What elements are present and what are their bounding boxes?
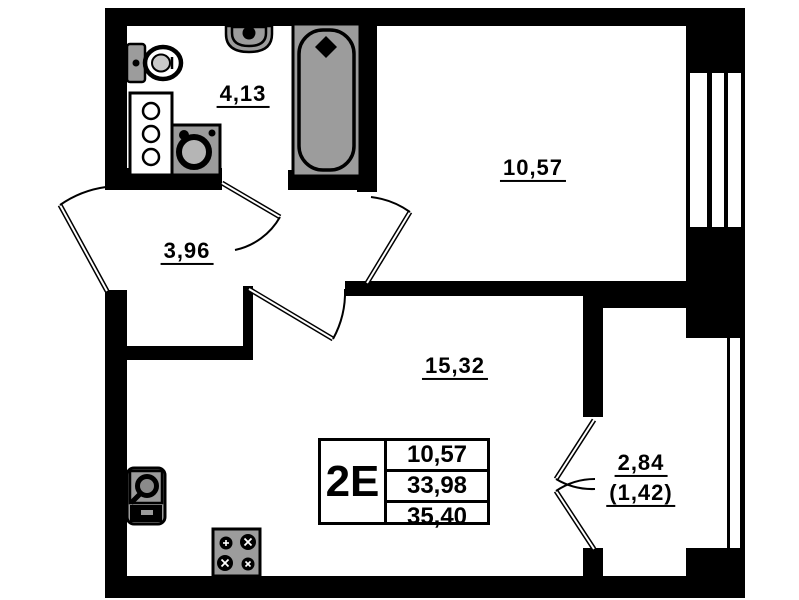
balcony-area-label: 2,84 [615, 451, 668, 477]
wall-right-pillar-bottom [686, 548, 745, 578]
living-room-door [249, 289, 345, 339]
bathroom-area-label: 4,13 [217, 82, 270, 108]
washing-machine [172, 125, 220, 175]
balcony-counted-area-label: (1,42) [606, 481, 675, 507]
wall-hall-bottom [127, 346, 253, 360]
balcony-glazing [727, 338, 730, 548]
stove [213, 529, 260, 576]
unit-area-values: 10,57 33,98 35,40 [387, 441, 487, 522]
balcony-french-doors [556, 420, 595, 549]
bathtub [293, 24, 360, 176]
wall-balcony-outer-edge [740, 308, 745, 578]
kitchen-sink [127, 468, 165, 524]
wall-balcony-left-stub [583, 548, 603, 578]
unit-type-label: 2Е [321, 441, 387, 522]
wall-right-pillar-mid [686, 227, 745, 338]
wall-balcony-left-upper [583, 296, 603, 417]
wall-bottom [105, 576, 745, 598]
total-area-value: 35,40 [387, 503, 487, 531]
entrance-door [60, 187, 107, 291]
wall-right-pillar-top [686, 8, 745, 73]
hallway-area-label: 3,96 [161, 239, 214, 265]
unit-info-table: 2Е 10,57 33,98 35,40 [318, 438, 490, 525]
area-without-balcony-value: 33,98 [387, 469, 487, 503]
bedroom-door [367, 197, 410, 283]
cabinet [130, 93, 172, 175]
wall-left-lower [105, 290, 127, 598]
bedroom-window [686, 73, 745, 227]
living-room-area-label: 15,32 [422, 354, 488, 380]
wall-balcony-top [603, 290, 688, 308]
wall-top [105, 8, 688, 26]
bathroom-door [222, 183, 280, 250]
living-area-value: 10,57 [387, 441, 487, 469]
bedroom-area-label: 10,57 [500, 156, 566, 182]
floor-plan: 4,13 3,96 10,57 15,32 2,84 (1,42) 2Е 10,… [0, 0, 799, 600]
toilet [127, 44, 181, 82]
wall-left-upper [105, 8, 127, 190]
washbasin [226, 26, 272, 52]
